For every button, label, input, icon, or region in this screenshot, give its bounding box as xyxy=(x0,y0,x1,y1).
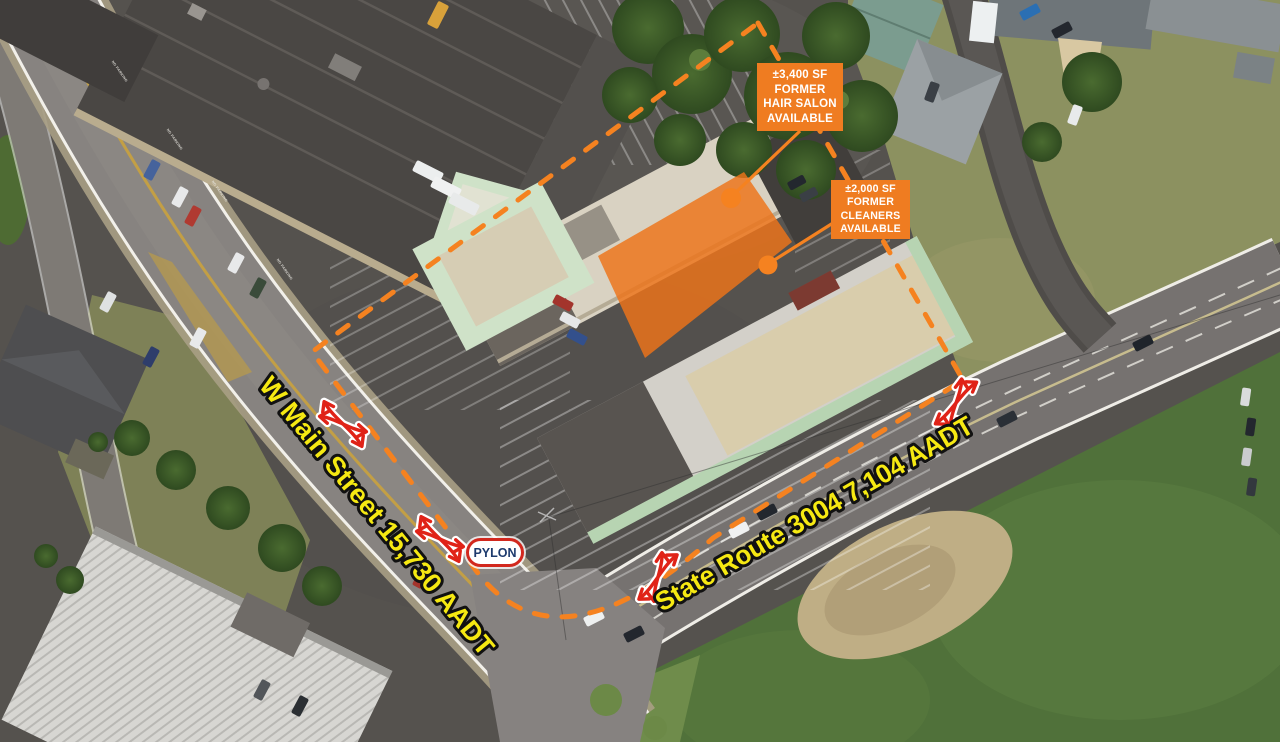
callout-line: AVAILABLE xyxy=(767,112,833,127)
callout-line: ±2,000 SF xyxy=(845,183,896,196)
callout-line: FORMER xyxy=(774,83,825,98)
trailer xyxy=(969,1,998,43)
aerial-photo-layer: W Main Street 15,730 AADT State Route 30… xyxy=(0,0,1280,742)
leader-dot-cleaners xyxy=(759,256,778,275)
aerial-site-map: W Main Street 15,730 AADT State Route 30… xyxy=(0,0,1280,742)
callout-line: ±3,400 SF xyxy=(773,68,828,83)
pylon-sign-badge: PYLON xyxy=(466,538,524,567)
callout-hair-salon: ±3,400 SF FORMER HAIR SALON AVAILABLE xyxy=(757,63,843,131)
callout-cleaners: ±2,000 SF FORMER CLEANERS AVAILABLE xyxy=(831,180,910,239)
callout-line: CLEANERS xyxy=(841,210,901,223)
pylon-label: PYLON xyxy=(473,546,516,560)
callout-line: HAIR SALON xyxy=(763,97,837,112)
callout-line: FORMER xyxy=(847,196,894,209)
leader-dot-hair-salon xyxy=(721,188,741,208)
callout-line: AVAILABLE xyxy=(840,223,901,236)
